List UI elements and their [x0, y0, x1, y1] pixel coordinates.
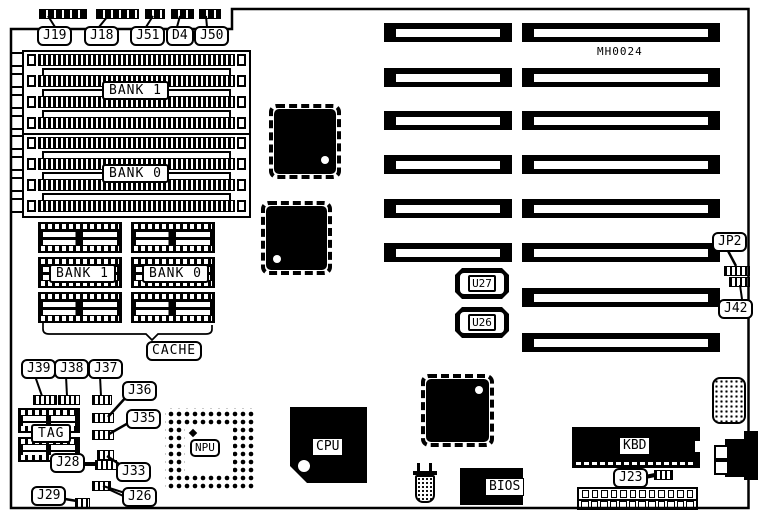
cache-brace: [43, 321, 212, 340]
label-j39: J39: [21, 359, 56, 379]
label-j23: J23: [613, 468, 648, 488]
label-j37: J37: [88, 359, 123, 379]
tag-label: TAG: [31, 424, 71, 443]
label-jp2: JP2: [712, 232, 747, 252]
label-j18: J18: [84, 26, 119, 46]
label-j29: J29: [31, 486, 66, 506]
cache-bank1-label: BANK 1: [49, 264, 116, 283]
label-j35: J35: [126, 409, 161, 429]
simm-bank1-label: BANK 1: [102, 81, 169, 100]
label-j42: J42: [718, 299, 753, 319]
label-j19: J19: [37, 26, 72, 46]
label-d4: D4: [166, 26, 194, 46]
board-outline-and-leader-lines: [0, 0, 758, 518]
cache-bank0-label: BANK 0: [142, 264, 209, 283]
motherboard-diagram: J19 J18 J51 D4 J50 BANK 1 BANK 0: [0, 0, 758, 518]
label-j51: J51: [130, 26, 165, 46]
cache-label: CACHE: [146, 341, 202, 361]
simm-bank0-label: BANK 0: [102, 164, 169, 183]
label-j38: J38: [54, 359, 89, 379]
label-j33: J33: [116, 462, 151, 482]
label-j28: J28: [50, 453, 85, 473]
board-part-number: MH0024: [597, 45, 643, 58]
label-j50: J50: [194, 26, 229, 46]
label-j26: J26: [122, 487, 157, 507]
label-j36: J36: [122, 381, 157, 401]
